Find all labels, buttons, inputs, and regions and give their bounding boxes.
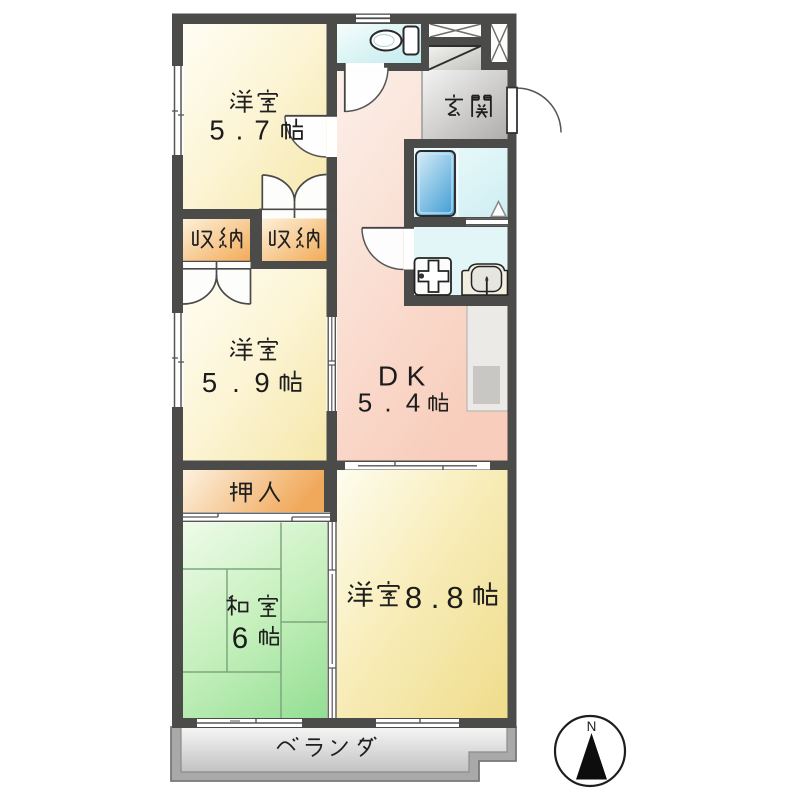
svg-text:5: 5 (209, 115, 224, 146)
svg-text:6: 6 (232, 622, 248, 655)
svg-text:N: N (587, 719, 597, 734)
svg-text:5: 5 (358, 388, 372, 418)
svg-text:.: . (232, 367, 240, 398)
svg-text:8: 8 (446, 580, 463, 615)
svg-text:9: 9 (254, 367, 269, 398)
svg-text:4: 4 (406, 388, 420, 418)
svg-text:.: . (431, 580, 440, 615)
svg-text:7: 7 (254, 115, 269, 146)
svg-text:5: 5 (202, 367, 217, 398)
svg-text:.: . (236, 115, 244, 146)
svg-text:8: 8 (405, 580, 422, 615)
svg-text:.: . (384, 388, 391, 418)
